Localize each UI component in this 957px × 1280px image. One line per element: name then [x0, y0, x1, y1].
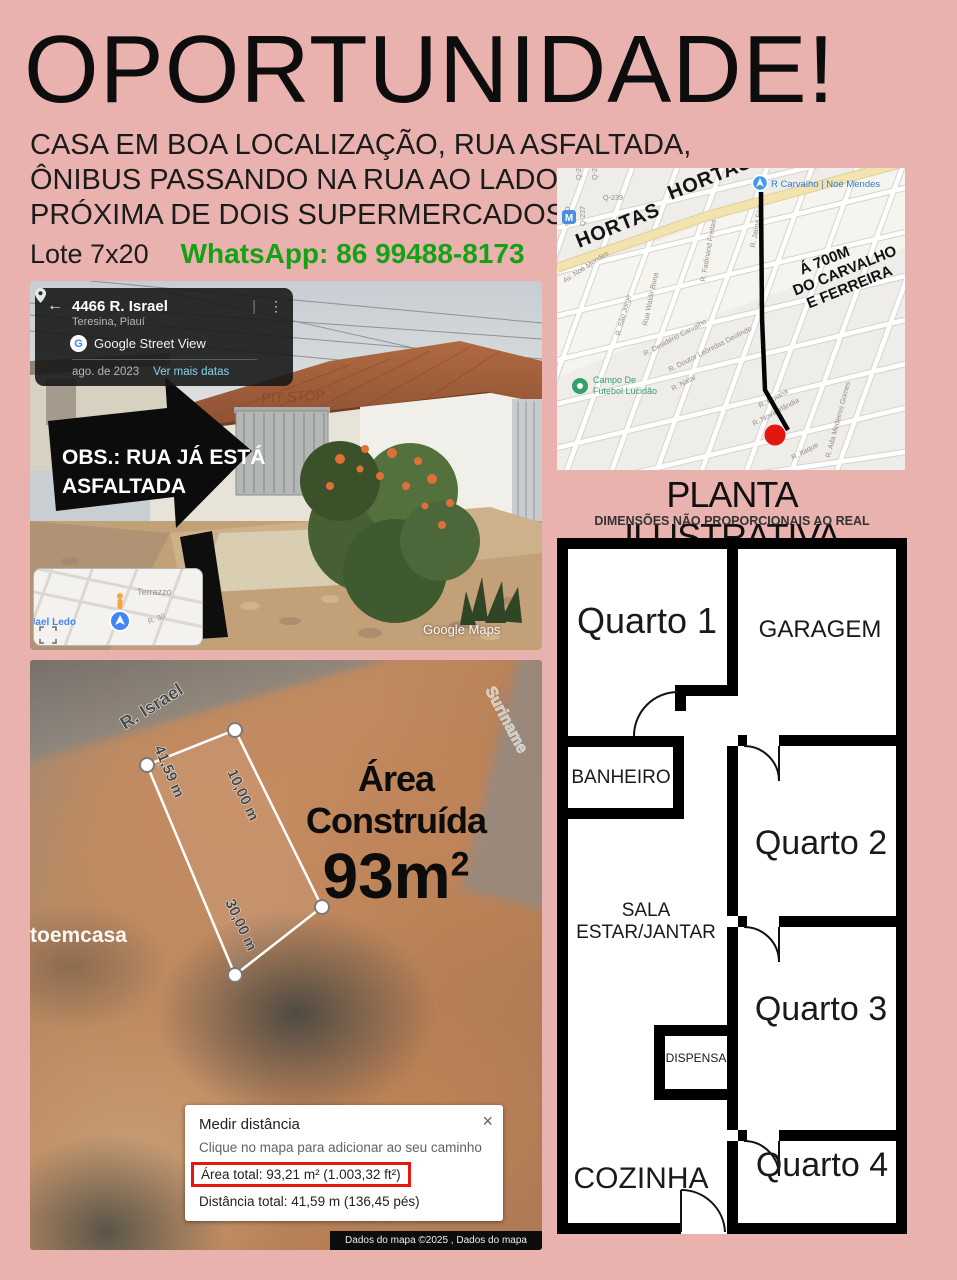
street-view-city: Teresina, Piauí: [72, 316, 283, 328]
page-title: OPORTUNIDADE!: [24, 22, 835, 118]
description-line-1: CASA EM BOA LOCALIZAÇÃO, RUA ASFALTADA,: [30, 128, 691, 163]
street-view-pin: [753, 176, 768, 191]
measure-distance-dialog: × Medir distância Clique no mapa para ad…: [185, 1105, 503, 1221]
watermark-toemcasa: toemcasa: [30, 924, 127, 948]
quad-237: Q-237: [578, 206, 587, 226]
minimap[interactable]: Terrazzo R. 30 Jael Ledo: [33, 568, 203, 646]
room-quarto-4: Quarto 4: [756, 1146, 888, 1184]
minimap-canvas: Terrazzo R. 30 Jael Ledo: [34, 569, 202, 645]
pegman-icon: [117, 593, 123, 609]
poi-line-2: Futebol Lucidão: [593, 386, 657, 396]
area-built-value: 93m2: [265, 844, 527, 908]
metro-icon: M: [562, 210, 576, 224]
minimap-label-r30: R. 30: [147, 611, 167, 626]
room-sala-line-1: SALA: [622, 900, 671, 921]
google-maps-watermark: Google Maps: [423, 622, 500, 637]
total-area-value: Área total: 93,21 m² (1.003,32 ft²): [191, 1162, 411, 1187]
location-pin-icon[interactable]: [35, 288, 46, 303]
whatsapp-number: WhatsApp: 86 99488-8173: [181, 238, 525, 270]
street-view-photo: PIT STOP: [30, 281, 542, 650]
aerial-photo: 202 Suriname R. Israel 41,59 m 10,00 m 3…: [30, 660, 542, 1250]
street-view-date: ago. de 2023: [72, 366, 139, 378]
map-credit-bar: Dados do mapa ©2025 , Dados do mapa: [330, 1231, 542, 1250]
red-location-dot: [765, 425, 786, 446]
room-garagem: GARAGEM: [759, 616, 882, 643]
room-quarto-1: Quarto 1: [577, 600, 717, 641]
dialog-hint: Clique no mapa para adicionar ao seu cam…: [199, 1140, 489, 1155]
plan-subheading: DIMENSÕES NÃO PROPORCIONAIS AO REAL: [557, 514, 907, 528]
floor-plan: Quarto 1 GARAGEM BANHEIRO SALA ESTAR/JAN…: [557, 538, 907, 1234]
room-quarto-2: Quarto 2: [755, 824, 887, 862]
room-sala-line-2: ESTAR/JANTAR: [576, 922, 716, 943]
quad-2a: Q-2: [574, 168, 583, 180]
flyer-page: OPORTUNIDADE! CASA EM BOA LOCALIZAÇÃO, R…: [0, 0, 957, 1280]
back-arrow-icon[interactable]: ←: [47, 297, 63, 315]
obs-note-line-1: OBS.: RUA JÁ ESTÁ: [62, 446, 265, 469]
map-canvas: Av. Noé Mendes R. São Jorge Rua Waldir B…: [557, 168, 905, 470]
room-cozinha: COZINHA: [574, 1162, 709, 1195]
location-map: Av. Noé Mendes R. São Jorge Rua Waldir B…: [557, 168, 905, 470]
ver-mais-datas-link[interactable]: Ver mais datas: [153, 366, 229, 378]
street-view-address: 4466 R. Israel: [72, 298, 246, 315]
room-quarto-3: Quarto 3: [755, 990, 887, 1028]
panel-separator: |: [252, 298, 256, 315]
room-banheiro: BANHEIRO: [571, 767, 670, 788]
area-title-block: Área Construída 93m2: [265, 758, 527, 908]
street-view-info-panel: ← 4466 R. Israel | ⋮ Teresina, Piauí G G…: [35, 288, 293, 386]
poi-line-1: Campo De: [593, 375, 636, 385]
google-logo-icon: G: [70, 335, 87, 352]
wall-sign: PIT STOP: [261, 387, 325, 406]
area-built-label: Área Construída: [265, 758, 527, 842]
lot-size: Lote 7x20: [30, 239, 149, 270]
quad-2b: Q-2: [590, 168, 599, 180]
street-view-brand: Google Street View: [94, 336, 206, 351]
metro-letter: M: [565, 213, 573, 224]
room-dispensa: DISPENSA: [666, 1051, 727, 1065]
quad-239: Q-239: [603, 193, 623, 202]
close-icon[interactable]: ×: [482, 1112, 493, 1130]
obs-note-line-2: ASFALTADA: [62, 475, 186, 498]
panel-divider: [72, 359, 257, 360]
minimap-label-terrazzo: Terrazzo: [137, 587, 172, 597]
minimap-expand-icon[interactable]: [40, 627, 56, 643]
street-r-israel: R. Israel: [117, 679, 187, 733]
area-value-sup: 2: [451, 846, 470, 884]
more-options-icon[interactable]: ⋮: [269, 298, 283, 315]
area-value-text: 93m: [322, 840, 450, 912]
entrance-gap: [681, 1221, 727, 1234]
pin-label: R Carvalho | Noé Mendes: [771, 179, 880, 190]
dialog-title: Medir distância: [199, 1116, 489, 1133]
total-distance-value: Distância total: 41,59 m (136,45 pés): [199, 1194, 489, 1209]
lot-row: Lote 7x20 WhatsApp: 86 99488-8173: [30, 238, 525, 270]
floor-plan-canvas: Quarto 1 GARAGEM BANHEIRO SALA ESTAR/JAN…: [557, 538, 907, 1234]
